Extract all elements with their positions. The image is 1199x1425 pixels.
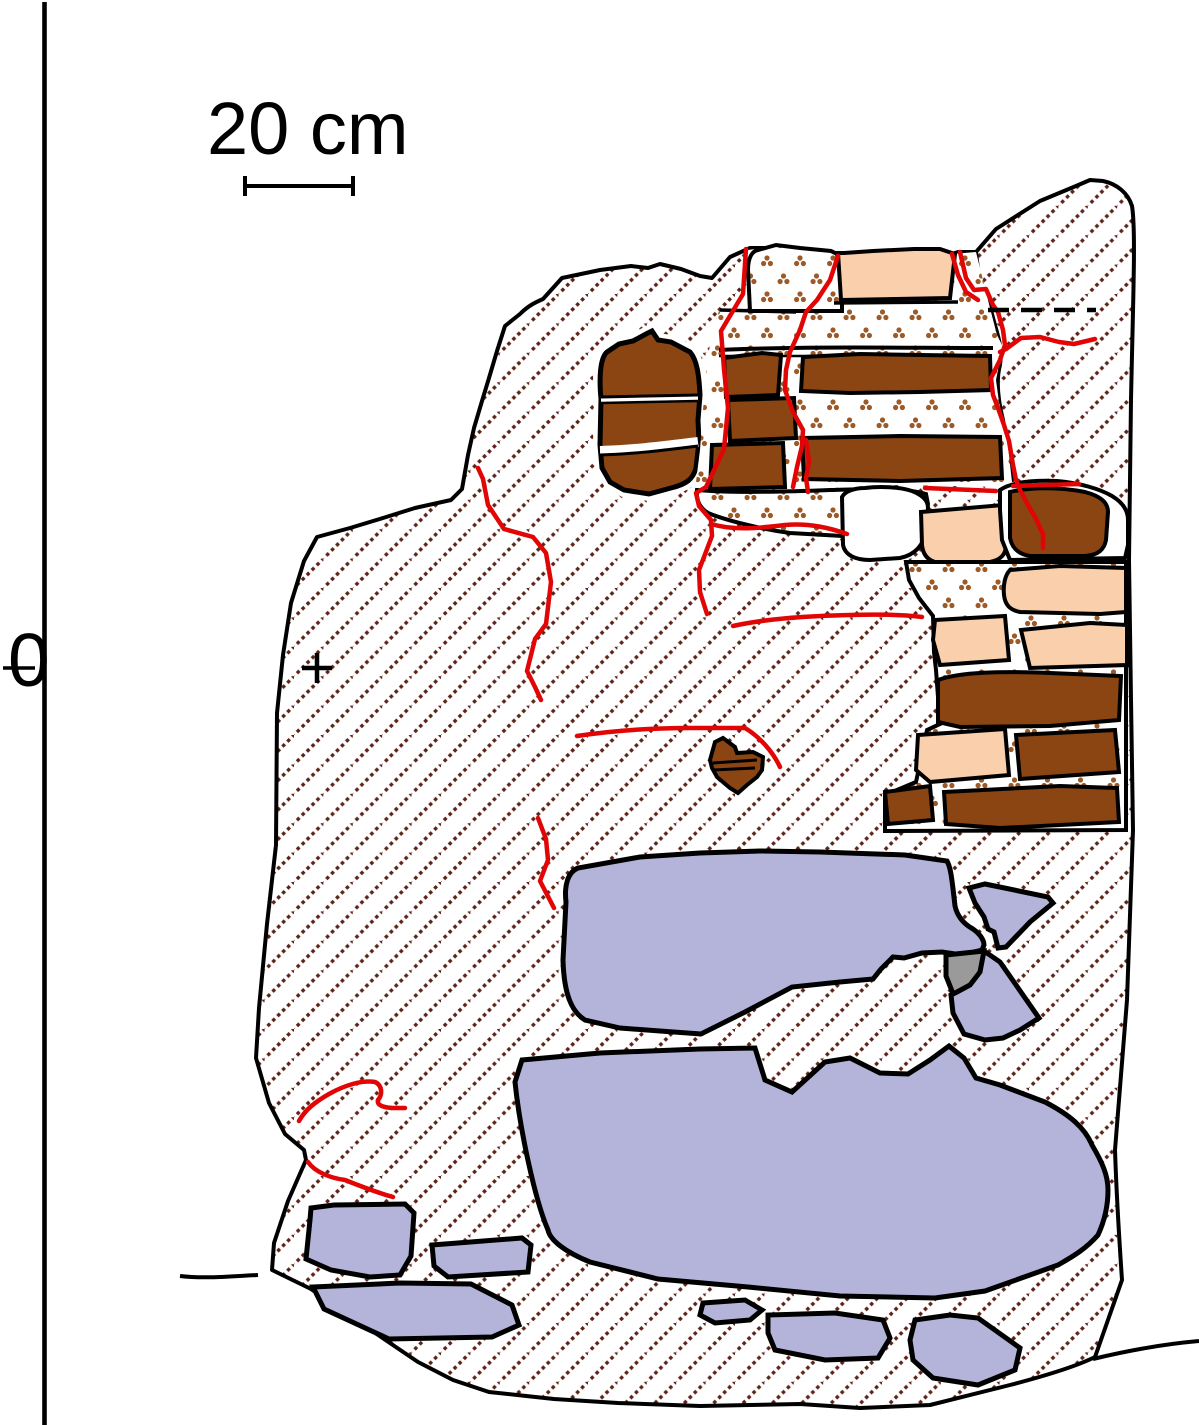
svg-text:20 cm: 20 cm [207,87,409,170]
svg-text:0: 0 [8,618,50,702]
